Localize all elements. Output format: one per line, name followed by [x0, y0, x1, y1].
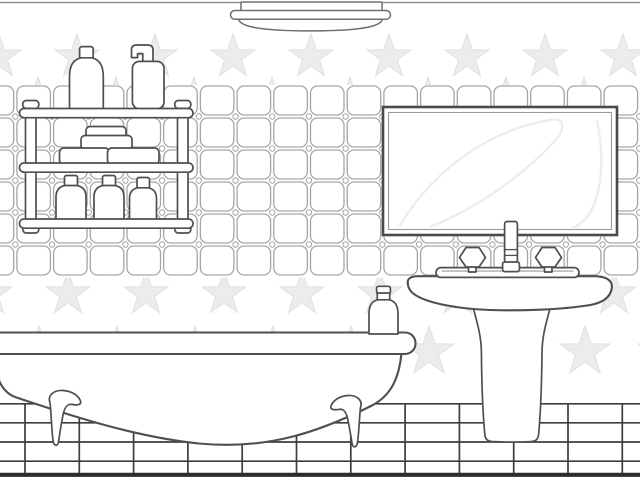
tile-joint-dot [343, 242, 348, 247]
bathroom-illustration [0, 0, 640, 480]
tile-joint-dot [306, 242, 311, 247]
ceiling-light [231, 2, 391, 31]
tile-joint-dot [49, 210, 54, 215]
mirror-frame [383, 107, 617, 235]
faucet-handle-right [536, 248, 562, 268]
soap-bar [108, 148, 160, 165]
shelf-board-middle [20, 163, 194, 172]
wall-tile [164, 246, 198, 275]
tile-joint-dot [233, 178, 238, 183]
tile-joint-dot [159, 178, 164, 183]
faucet-spout [505, 222, 518, 263]
wall-tile [274, 246, 308, 275]
tile-joint-dot [306, 146, 311, 151]
wall-tile [200, 246, 234, 275]
wall-tile [274, 86, 308, 115]
lotion-bottle [94, 186, 124, 220]
wall-tile [200, 86, 234, 115]
wall-tile [311, 150, 345, 179]
tile-joint-dot [380, 242, 385, 247]
tile-joint-dot [637, 178, 640, 183]
star [124, 271, 168, 313]
wall-tile [0, 86, 14, 115]
tile-joint-dot [306, 210, 311, 215]
tile-joint-dot [306, 114, 311, 119]
wall-tile [311, 246, 345, 275]
lamp-band [231, 11, 391, 20]
star [202, 271, 246, 313]
tile-joint-dot [600, 242, 605, 247]
wall-tile [237, 182, 271, 211]
shelf-board-bottom [20, 219, 194, 228]
tile-joint-dot [123, 178, 128, 183]
star [0, 34, 21, 76]
tile-joint-dot [196, 114, 201, 119]
tile-joint-dot [196, 146, 201, 151]
wall-tile [0, 150, 14, 179]
wall-tile [200, 150, 234, 179]
wall-tile [311, 214, 345, 243]
wall-tile [347, 86, 381, 115]
tile-joint-dot [343, 178, 348, 183]
wall-tile [347, 150, 381, 179]
wall-tile [54, 246, 88, 275]
wall-tile [274, 214, 308, 243]
tile-joint-dot [270, 210, 275, 215]
tile-joint-dot [159, 146, 164, 151]
sink-pedestal [474, 309, 550, 442]
tile-joint-dot [233, 210, 238, 215]
star [280, 271, 324, 313]
wall-tile [237, 118, 271, 147]
star [211, 34, 255, 76]
wall-mirror [383, 107, 617, 235]
tile-joint-dot [86, 242, 91, 247]
star [0, 271, 12, 313]
star [445, 34, 489, 76]
wall-tile [347, 246, 381, 275]
wall-tile [384, 246, 418, 275]
tile-joint-dot [159, 210, 164, 215]
shelf-board-top [20, 109, 194, 118]
tile-joint-dot [343, 146, 348, 151]
star [560, 326, 609, 373]
wall-tile [0, 214, 14, 243]
star [46, 271, 90, 313]
tile-joint-dot [563, 242, 568, 247]
tile-joint-dot [637, 242, 640, 247]
wall-tile [237, 86, 271, 115]
wall-tile [200, 214, 234, 243]
wall-tile [311, 118, 345, 147]
bathtub [0, 286, 416, 447]
lamp-dome [239, 19, 383, 31]
star [367, 34, 411, 76]
lotion-bottle [56, 186, 86, 220]
tile-joint-dot [343, 114, 348, 119]
shampoo-body [70, 58, 104, 109]
sink-basin [408, 276, 612, 310]
wall-tile [90, 246, 124, 275]
tile-joint-dot [233, 114, 238, 119]
wall-tile [604, 246, 638, 275]
tile-joint-dot [453, 242, 458, 247]
tile-joint-dot [86, 178, 91, 183]
tile-joint-dot [233, 146, 238, 151]
bathroom-coloring-page [0, 0, 640, 480]
pump-spout [132, 45, 154, 62]
tile-joint-dot [637, 114, 640, 119]
wall-tile [237, 246, 271, 275]
star [523, 34, 567, 76]
tub-rim [0, 333, 416, 355]
wall-tile [237, 214, 271, 243]
wall-tile [274, 118, 308, 147]
tile-joint-dot [49, 178, 54, 183]
shelf-post-cap [175, 101, 191, 109]
wall-tile [274, 150, 308, 179]
wall-tile [200, 118, 234, 147]
tile-joint-dot [196, 178, 201, 183]
tile-joint-dot [13, 114, 18, 119]
wall-tile [200, 182, 234, 211]
soap-bar [60, 148, 110, 165]
tile-joint-dot [306, 178, 311, 183]
lotion-bottle-neck [137, 178, 150, 189]
tile-joint-dot [637, 210, 640, 215]
wall-tile [0, 246, 14, 275]
wall-tile [311, 182, 345, 211]
tile-joint-dot [233, 242, 238, 247]
tile-joint-dot [49, 146, 54, 151]
tile-joint-dot [490, 242, 495, 247]
wall-tile [127, 246, 161, 275]
tile-joint-dot [49, 242, 54, 247]
tile-joint-dot [196, 242, 201, 247]
tile-joint-dot [123, 242, 128, 247]
faucet-handle-left [460, 248, 486, 268]
wall-tile [0, 182, 14, 211]
wall-tile [311, 86, 345, 115]
tile-joint-dot [13, 242, 18, 247]
rim-bottle-body [369, 300, 398, 334]
star [289, 34, 333, 76]
wall-tile [0, 118, 14, 147]
shelf-bottles [56, 176, 157, 220]
shelf-post-cap [23, 101, 39, 109]
wall-tile [347, 118, 381, 147]
tile-joint-dot [13, 146, 18, 151]
wall-tile [347, 182, 381, 211]
tile-joint-dot [637, 146, 640, 151]
tile-joint-dot [270, 242, 275, 247]
wall-tile [347, 214, 381, 243]
pump-body [132, 61, 164, 108]
faucet-spout-base [503, 262, 520, 272]
tile-joint-dot [13, 178, 18, 183]
tile-joint-dot [270, 114, 275, 119]
wall-tile [274, 182, 308, 211]
tile-joint-dot [270, 178, 275, 183]
tile-joint-dot [526, 242, 531, 247]
lotion-bottle [130, 188, 157, 220]
tile-joint-dot [159, 242, 164, 247]
star [601, 34, 640, 76]
tile-joint-dot [13, 210, 18, 215]
tile-joint-dot [270, 146, 275, 151]
tile-joint-dot [196, 210, 201, 215]
wall-tile [17, 246, 51, 275]
tile-joint-dot [416, 242, 421, 247]
wall-tile [237, 150, 271, 179]
tile-joint-dot [343, 210, 348, 215]
